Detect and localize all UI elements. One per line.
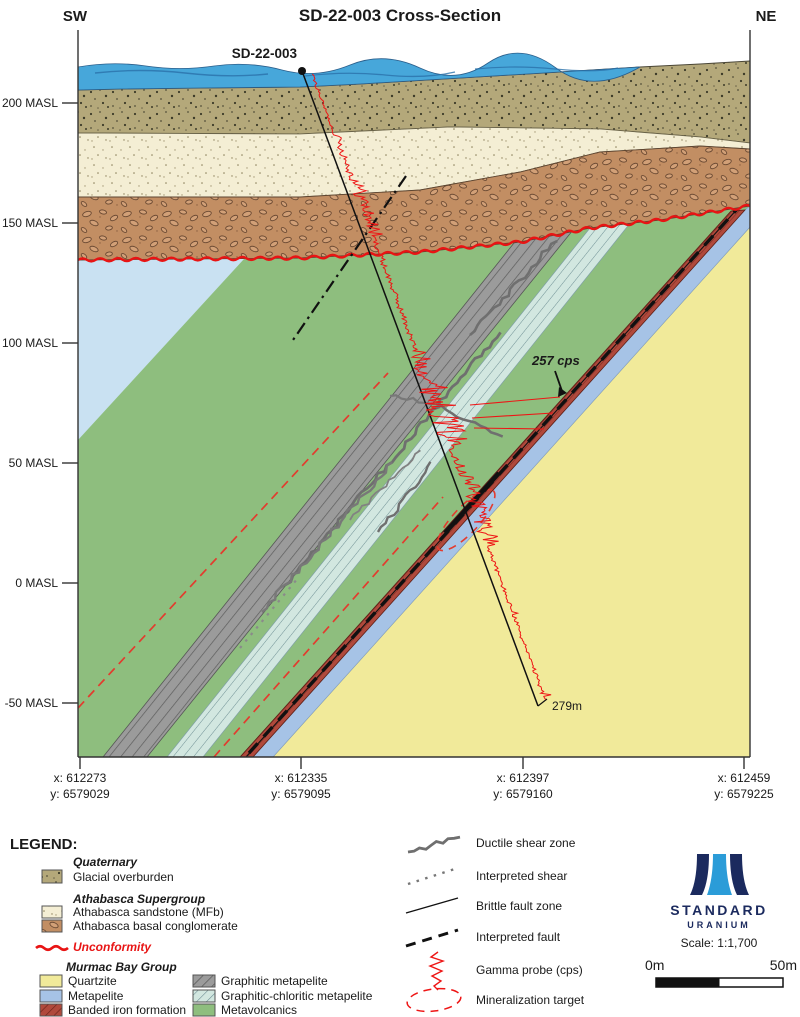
legend-quaternary-group: Quaternary Glacial overburden bbox=[42, 855, 174, 884]
masl-label: 150 MASL bbox=[2, 216, 58, 230]
ne-label: NE bbox=[756, 8, 777, 25]
legend-heading: LEGEND: bbox=[10, 836, 78, 853]
symbol-label: Interpreted fault bbox=[476, 930, 561, 944]
graphitic-metapelite-swatch bbox=[193, 975, 215, 987]
scalebar-filled-half bbox=[656, 978, 720, 987]
interpreted-fault-symbol bbox=[406, 930, 458, 946]
unconformity-symbol bbox=[36, 946, 68, 950]
masl-label: 50 MASL bbox=[9, 456, 59, 470]
legend-item-label: Graphitic-chloritic metapelite bbox=[221, 989, 373, 1003]
graphitic-chloritic-swatch bbox=[193, 990, 215, 1002]
quartzite-swatch bbox=[40, 975, 62, 987]
group-title: Athabasca Supergroup bbox=[72, 892, 205, 906]
logo-name: STANDARD bbox=[670, 902, 768, 918]
coord-x: x: 612459 bbox=[718, 771, 771, 785]
logo-right-shape bbox=[730, 854, 749, 895]
coord-ticks bbox=[80, 757, 744, 769]
drill-hole-label: SD-22-003 bbox=[232, 46, 298, 61]
symbol-label: Mineralization target bbox=[476, 993, 585, 1007]
legend-unconformity-row: Unconformity bbox=[36, 940, 152, 954]
coord-y: y: 6579029 bbox=[50, 787, 110, 801]
legend-athabasca-group: Athabasca Supergroup Athabasca sandstone… bbox=[42, 892, 238, 933]
symbol-label: Brittle fault zone bbox=[476, 899, 562, 913]
legend-item-label: Graphitic metapelite bbox=[221, 974, 328, 988]
legend-item-label: Glacial overburden bbox=[73, 870, 174, 884]
gamma-probe-symbol bbox=[430, 952, 443, 990]
brittle-fault-symbol bbox=[406, 898, 458, 913]
coordinate-labels: x: 612273 y: 6579029 x: 612335 y: 657909… bbox=[50, 771, 774, 801]
interpreted-shear-symbol bbox=[408, 868, 458, 884]
drill-collar-dot bbox=[298, 67, 306, 75]
logo-left-shape bbox=[690, 854, 709, 895]
coord-x: x: 612273 bbox=[54, 771, 107, 785]
mineralization-target-symbol bbox=[406, 986, 462, 1014]
conglomerate-swatch bbox=[42, 920, 62, 932]
logo-sub: URANIUM bbox=[687, 920, 751, 930]
masl-label: -50 MASL bbox=[5, 696, 59, 710]
legend-item-label: Quartzite bbox=[68, 974, 117, 988]
group-title: Quaternary bbox=[73, 855, 138, 869]
coord-y: y: 6579225 bbox=[714, 787, 774, 801]
masl-labels: 200 MASL 150 MASL 100 MASL 50 MASL 0 MAS… bbox=[2, 96, 58, 710]
ductile-shear-symbol bbox=[408, 837, 460, 852]
sw-label: SW bbox=[63, 8, 88, 25]
depth-label: 279m bbox=[552, 699, 582, 713]
coord-y: y: 6579160 bbox=[493, 787, 553, 801]
legend-item-label: Metapelite bbox=[68, 989, 124, 1003]
legend-item-label: Banded iron formation bbox=[68, 1003, 186, 1017]
scalebar-left-label: 0m bbox=[645, 957, 664, 973]
metavolcanics-swatch bbox=[193, 1004, 215, 1016]
coord-y: y: 6579095 bbox=[271, 787, 331, 801]
unconformity-label: Unconformity bbox=[73, 940, 152, 954]
group-title: Murmac Bay Group bbox=[66, 960, 177, 974]
scale-text: Scale: 1:1,700 bbox=[681, 936, 758, 950]
section-body bbox=[78, 53, 750, 757]
symbol-label: Interpreted shear bbox=[476, 869, 567, 883]
coord-x: x: 612397 bbox=[497, 771, 550, 785]
scale-group: Scale: 1:1,700 0m 50m bbox=[645, 936, 797, 987]
masl-label: 0 MASL bbox=[15, 576, 58, 590]
scalebar-right-label: 50m bbox=[770, 957, 797, 973]
symbol-label: Gamma probe (cps) bbox=[476, 963, 583, 977]
cross-section-svg: SD-22-003 Cross-Section SW NE 200 MASL 1… bbox=[0, 0, 800, 1017]
coord-x: x: 612335 bbox=[275, 771, 328, 785]
legend-item-label: Metavolcanics bbox=[221, 1003, 297, 1017]
glacial-overburden-swatch bbox=[42, 870, 62, 883]
metapelite-swatch bbox=[40, 990, 62, 1002]
symbol-label: Ductile shear zone bbox=[476, 836, 576, 850]
cross-section-figure: SD-22-003 Cross-Section SW NE 200 MASL 1… bbox=[0, 0, 800, 1017]
peak-label: 257 cps bbox=[531, 353, 580, 368]
company-logo: STANDARD URANIUM bbox=[670, 854, 768, 930]
banded-iron-swatch bbox=[40, 1004, 62, 1016]
logo-center-shape bbox=[707, 854, 732, 895]
masl-label: 100 MASL bbox=[2, 336, 58, 350]
sandstone-swatch bbox=[42, 906, 62, 918]
legend-item-label: Athabasca basal conglomerate bbox=[73, 919, 238, 933]
legend-murmac-group: Murmac Bay Group Quartzite Metapelite Ba… bbox=[40, 960, 373, 1017]
legend-item-label: Athabasca sandstone (MFb) bbox=[73, 905, 224, 919]
masl-label: 200 MASL bbox=[2, 96, 58, 110]
page-title: SD-22-003 Cross-Section bbox=[299, 6, 501, 25]
legend-symbols: Ductile shear zone Interpreted shear Bri… bbox=[406, 836, 585, 1014]
masl-ticks bbox=[62, 103, 78, 703]
